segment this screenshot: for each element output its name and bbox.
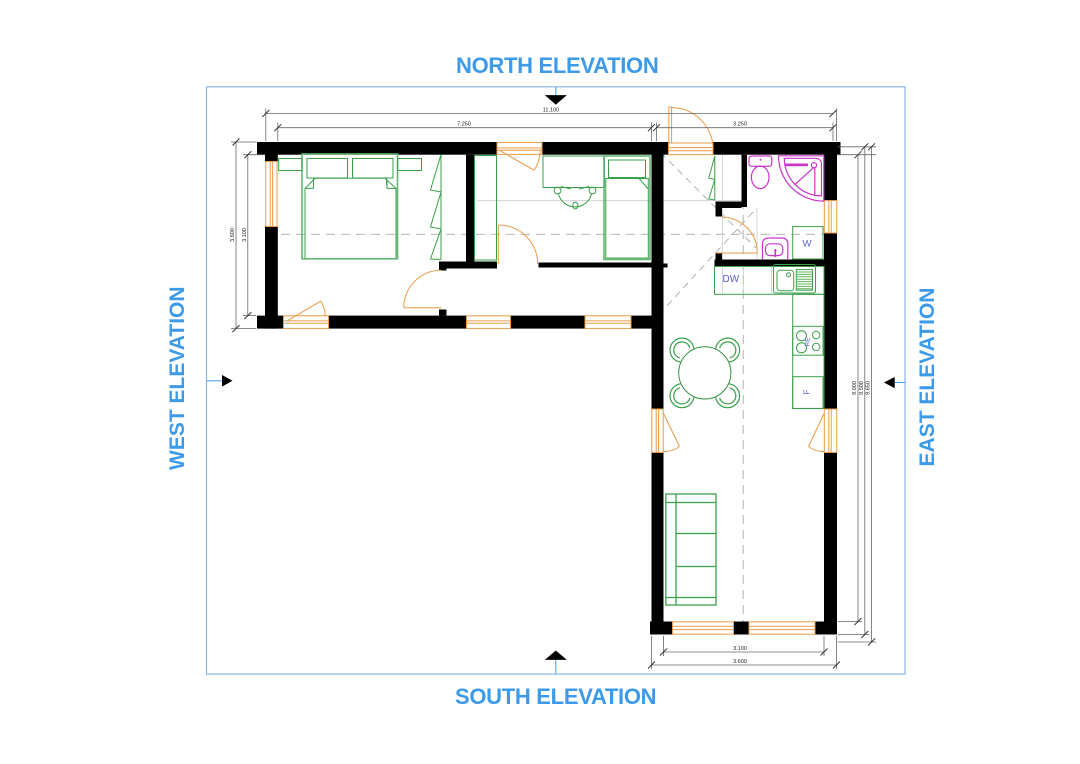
svg-text:9.000: 9.000 bbox=[852, 381, 858, 395]
svg-text:3.100: 3.100 bbox=[733, 646, 747, 652]
svg-text:W: W bbox=[803, 239, 812, 250]
svg-text:3.600: 3.600 bbox=[733, 659, 747, 665]
svg-text:7.250: 7.250 bbox=[457, 122, 471, 128]
svg-text:DW: DW bbox=[723, 274, 740, 285]
svg-text:11.100: 11.100 bbox=[543, 108, 559, 114]
svg-text:RE: RE bbox=[805, 337, 812, 347]
svg-text:F: F bbox=[803, 390, 812, 395]
svg-text:3.600: 3.600 bbox=[230, 228, 236, 242]
svg-text:3.100: 3.100 bbox=[242, 228, 248, 242]
svg-text:9.650: 9.650 bbox=[866, 381, 872, 395]
svg-text:9.500: 9.500 bbox=[859, 381, 865, 395]
svg-text:3.250: 3.250 bbox=[733, 122, 747, 128]
